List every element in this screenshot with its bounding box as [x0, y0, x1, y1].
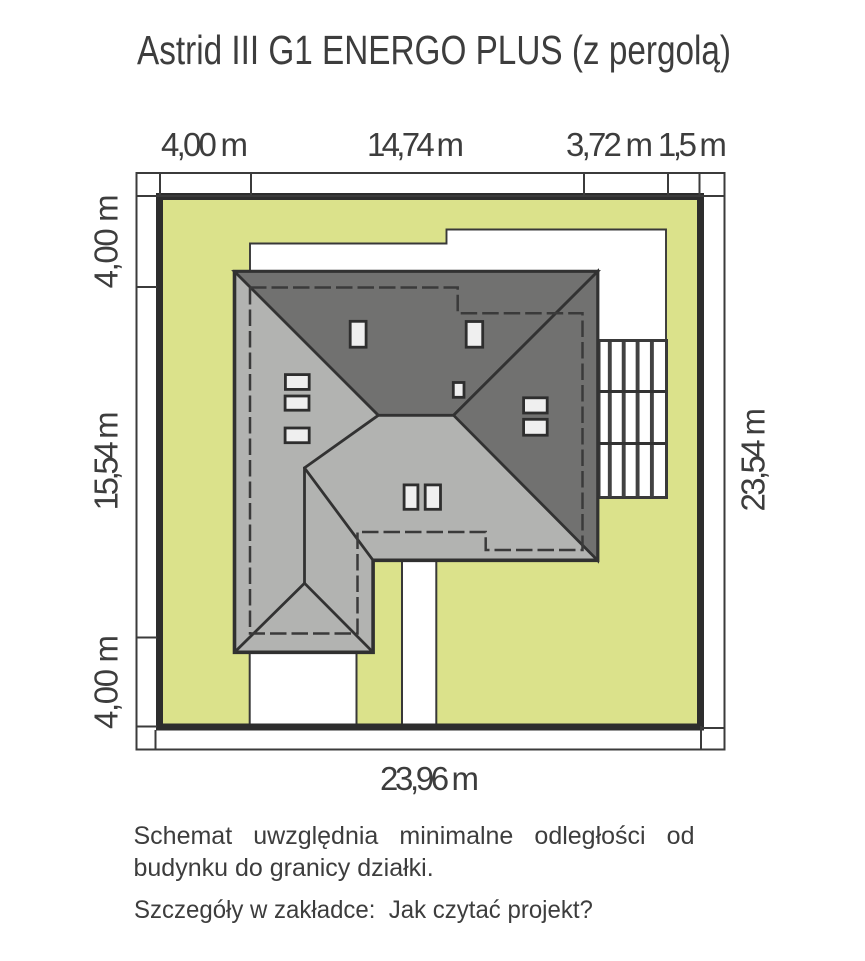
svg-text:4,00 m: 4,00 m: [161, 126, 248, 163]
svg-text:4,00 m: 4,00 m: [88, 635, 125, 729]
svg-text:1,5 m: 1,5 m: [658, 126, 727, 163]
svg-text:23,96 m: 23,96 m: [380, 760, 479, 797]
svg-text:14,74 m: 14,74 m: [367, 126, 464, 163]
svg-text:15,54 m: 15,54 m: [88, 411, 125, 510]
svg-text:23,54 m: 23,54 m: [735, 408, 772, 512]
svg-text:Astrid III G1 ENERGO PLUS (z p: Astrid III G1 ENERGO PLUS (z pergolą): [137, 27, 731, 73]
svg-text:4,00 m: 4,00 m: [88, 194, 125, 288]
svg-text:3,72 m: 3,72 m: [566, 126, 653, 163]
